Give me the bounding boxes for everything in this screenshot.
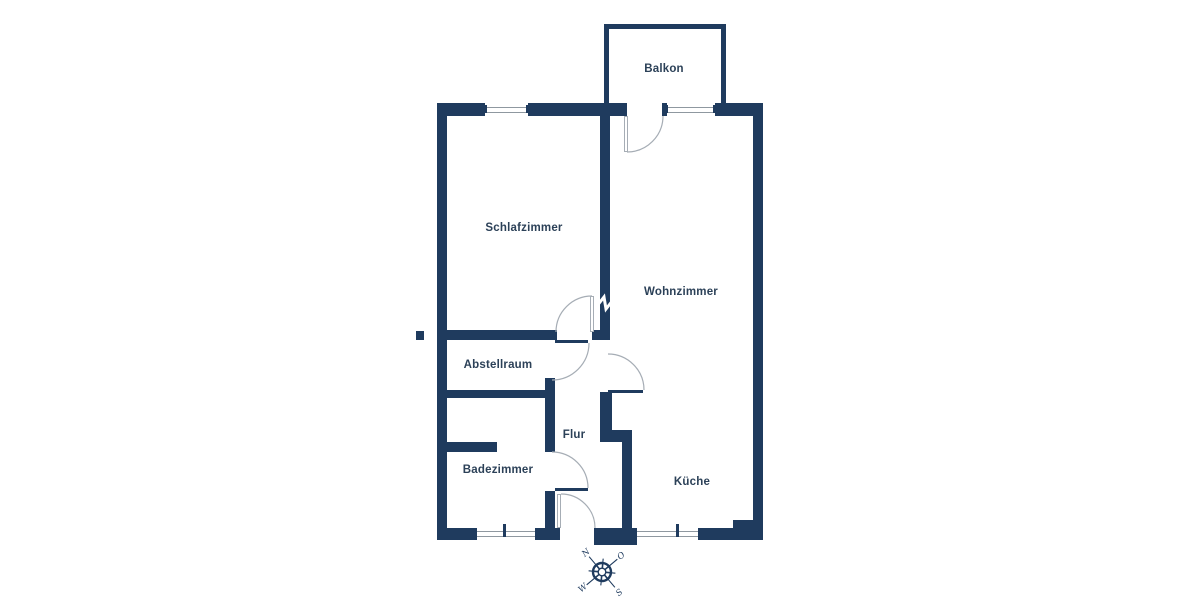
entry-door-arc — [561, 494, 595, 528]
room-label-badezimmer: Badezimmer — [463, 464, 533, 476]
room-label-balkon: Balkon — [644, 63, 684, 75]
room-label-wohnzimmer: Wohnzimmer — [644, 286, 718, 298]
room-label-schlafzimmer: Schlafzimmer — [485, 222, 562, 234]
room-label-abstellraum: Abstellraum — [464, 359, 533, 371]
balcony-door-arc — [627, 116, 663, 152]
compass-east-label: O — [616, 550, 628, 562]
wohnzimmer-door-arc — [608, 354, 644, 390]
floor-plan: N O S W Balkon Schlafzimmer Wohnzimmer A… — [0, 0, 1200, 600]
overlay-graphics: N O S W — [0, 0, 1200, 600]
badezimmer-door-arc — [552, 452, 588, 488]
room-label-flur: Flur — [563, 429, 586, 441]
wall-break-symbol — [597, 297, 613, 309]
room-label-kueche: Küche — [674, 476, 710, 488]
schlafzimmer-door-arc — [556, 296, 592, 332]
abstellraum-door-arc — [552, 343, 589, 380]
compass-rose: N O S W — [561, 531, 645, 600]
compass-south-label: S — [614, 587, 625, 599]
